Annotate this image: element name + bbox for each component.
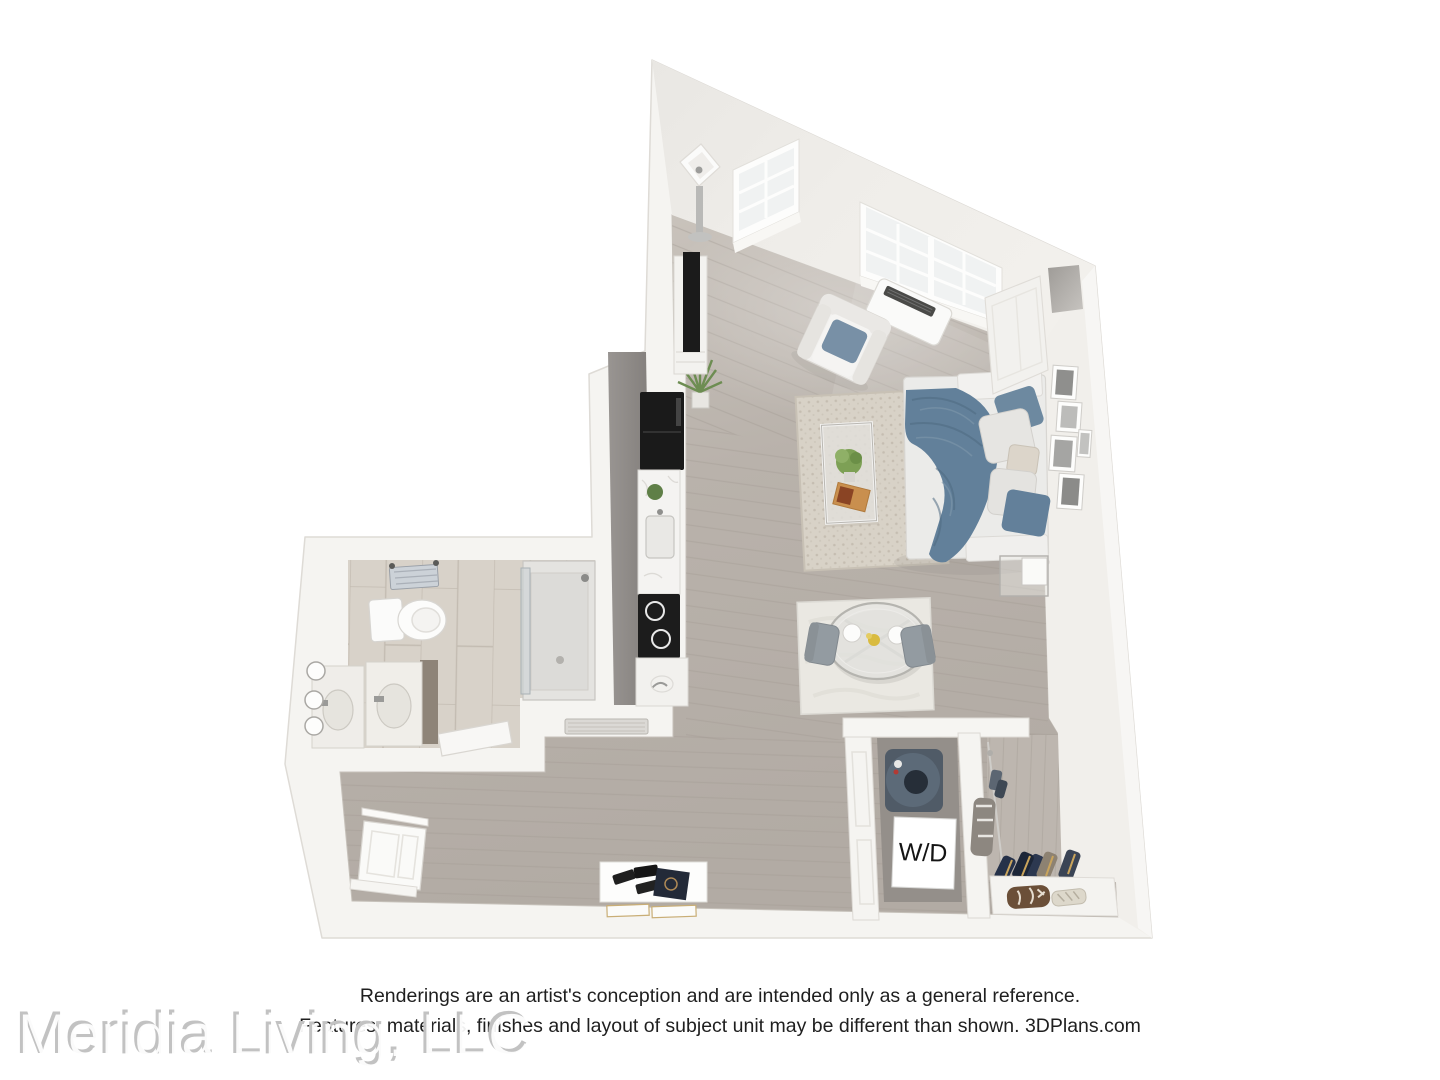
svg-text:W/D: W/D [898, 838, 948, 868]
svg-text:Meridia Living, LLC: Meridia Living, LLC [18, 1002, 532, 1069]
